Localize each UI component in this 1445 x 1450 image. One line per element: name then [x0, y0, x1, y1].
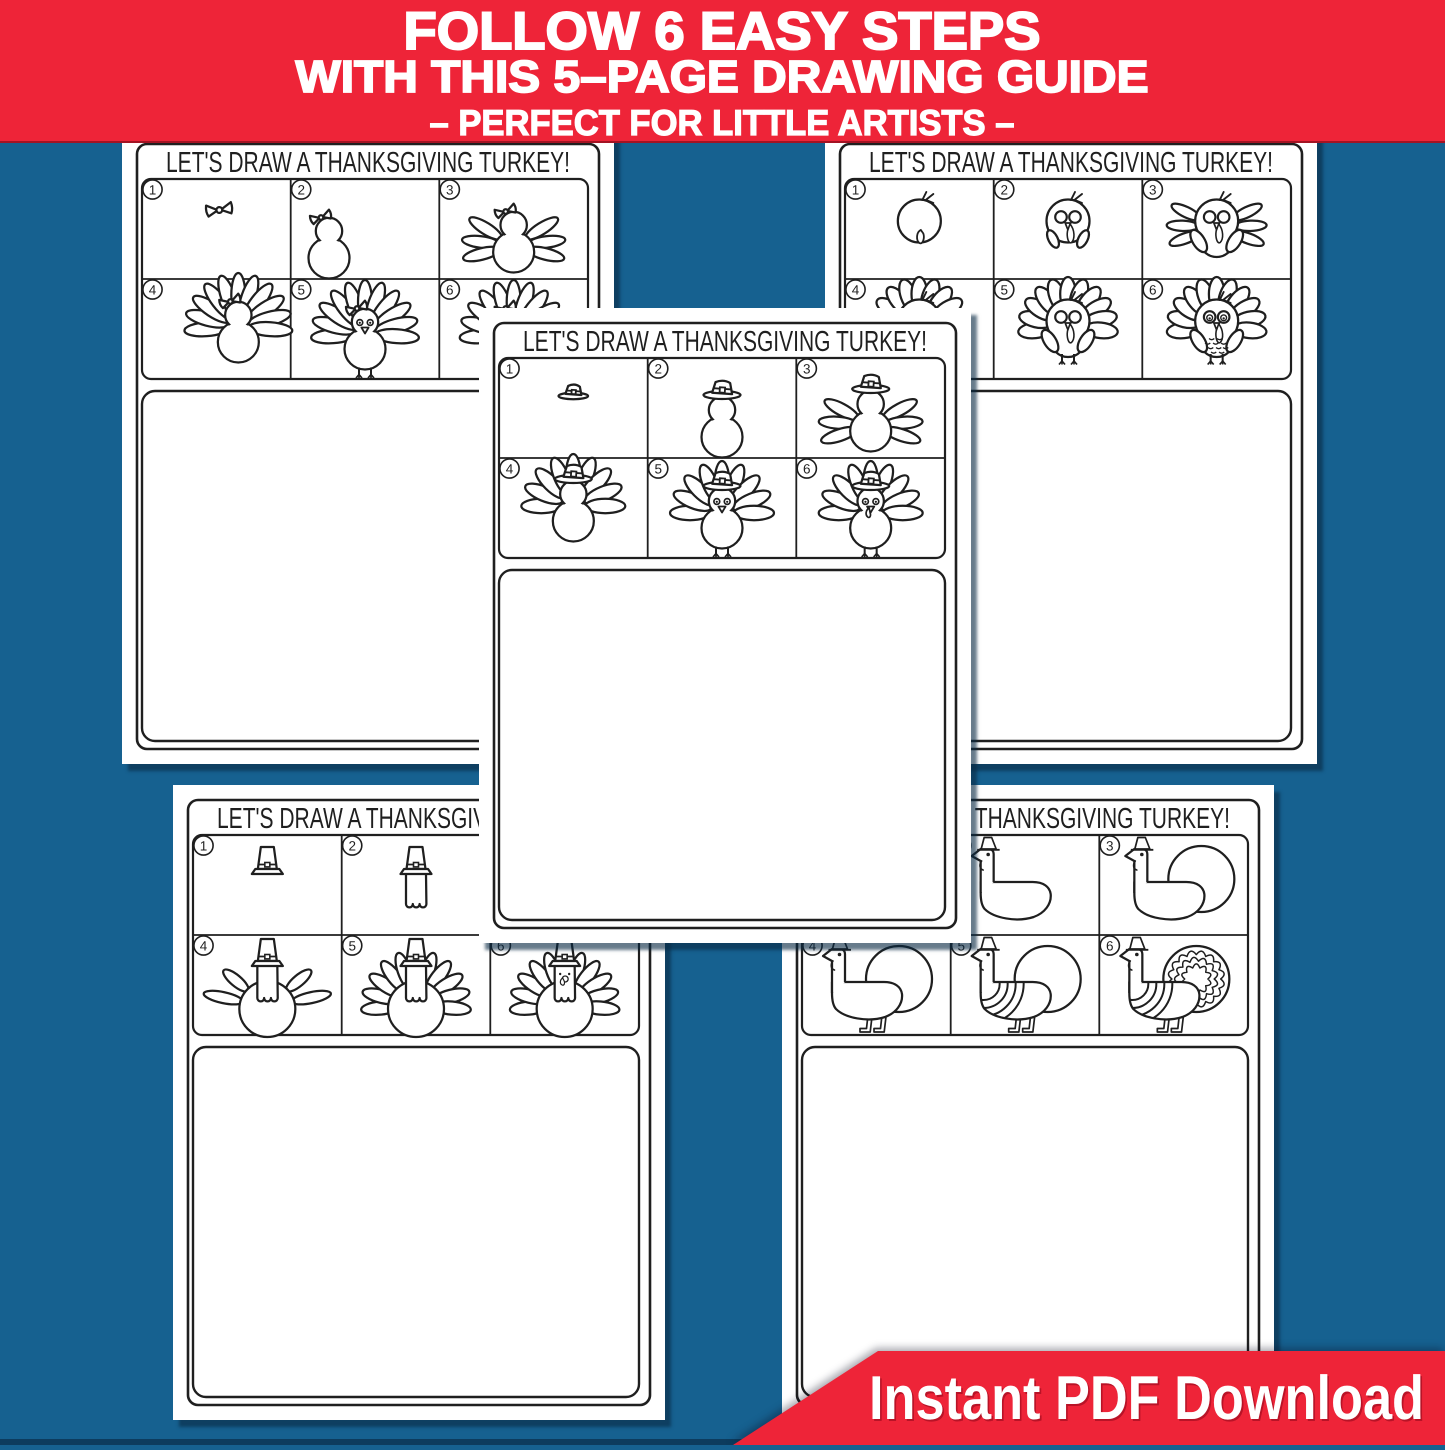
svg-text:WITH THIS 5–PAGE DRAWING GUIDE: WITH THIS 5–PAGE DRAWING GUIDE	[296, 51, 1149, 102]
svg-text:1: 1	[200, 838, 208, 853]
svg-text:4: 4	[852, 282, 860, 297]
svg-text:3: 3	[803, 361, 811, 376]
svg-text:2: 2	[654, 361, 662, 376]
svg-text:3: 3	[446, 182, 454, 197]
svg-text:6: 6	[803, 461, 811, 476]
svg-text:5: 5	[297, 282, 305, 297]
svg-text:6: 6	[1106, 938, 1114, 953]
svg-text:4: 4	[506, 461, 514, 476]
svg-text:1: 1	[506, 361, 514, 376]
svg-text:1: 1	[149, 182, 157, 197]
svg-text:LET'S DRAW A THANKSGIVING TURK: LET'S DRAW A THANKSGIVING TURKEY!	[869, 147, 1273, 179]
svg-text:4: 4	[200, 938, 208, 953]
svg-text:5: 5	[654, 461, 662, 476]
svg-text:2: 2	[1000, 182, 1008, 197]
svg-text:5: 5	[348, 938, 356, 953]
svg-text:LET'S DRAW A THANKSGIVING TURK: LET'S DRAW A THANKSGIVING TURKEY!	[523, 326, 927, 358]
svg-text:4: 4	[149, 282, 157, 297]
svg-text:3: 3	[1149, 182, 1157, 197]
svg-text:6: 6	[1149, 282, 1157, 297]
svg-text:6: 6	[446, 282, 454, 297]
svg-text:2: 2	[348, 838, 356, 853]
svg-text:3: 3	[1106, 838, 1114, 853]
svg-text:2: 2	[297, 182, 305, 197]
svg-text:1: 1	[852, 182, 860, 197]
svg-text:5: 5	[1000, 282, 1008, 297]
svg-text:LET'S DRAW A THANKSGIVING TURK: LET'S DRAW A THANKSGIVING TURKEY!	[166, 147, 570, 179]
svg-text:– PERFECT FOR LITTLE ARTISTS –: – PERFECT FOR LITTLE ARTISTS –	[430, 102, 1015, 141]
